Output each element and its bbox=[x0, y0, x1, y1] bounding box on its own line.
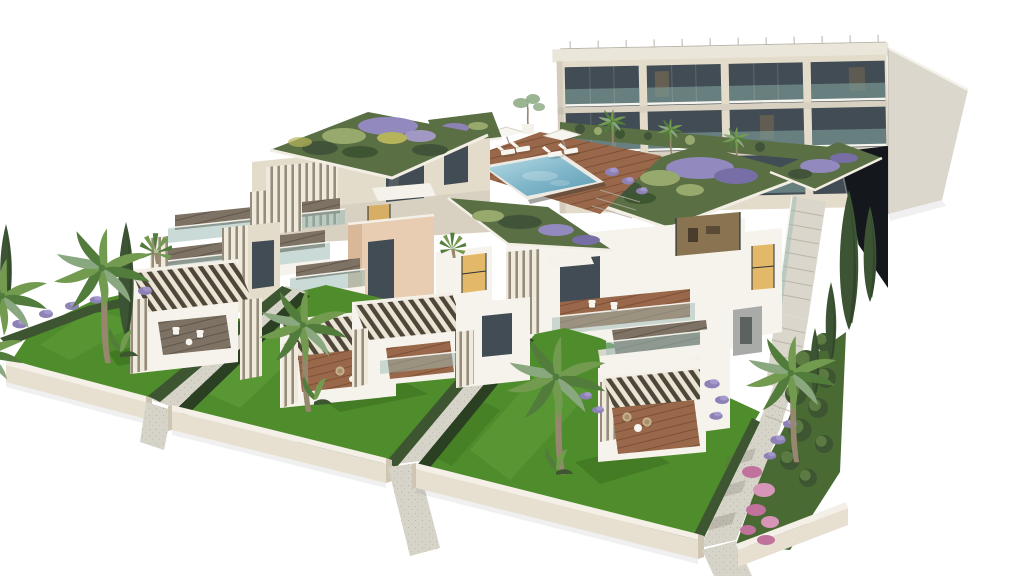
lit-window-large bbox=[676, 212, 740, 256]
render-canvas bbox=[0, 0, 1024, 576]
pergola-unit-3 bbox=[352, 292, 466, 388]
lit-window bbox=[752, 244, 774, 290]
architectural-rendering bbox=[0, 0, 1024, 576]
stair-box bbox=[733, 306, 762, 356]
pergola-unit-1 bbox=[130, 259, 252, 374]
louver-fence bbox=[240, 298, 262, 380]
unit-block bbox=[456, 297, 530, 388]
lit-window bbox=[462, 253, 486, 293]
